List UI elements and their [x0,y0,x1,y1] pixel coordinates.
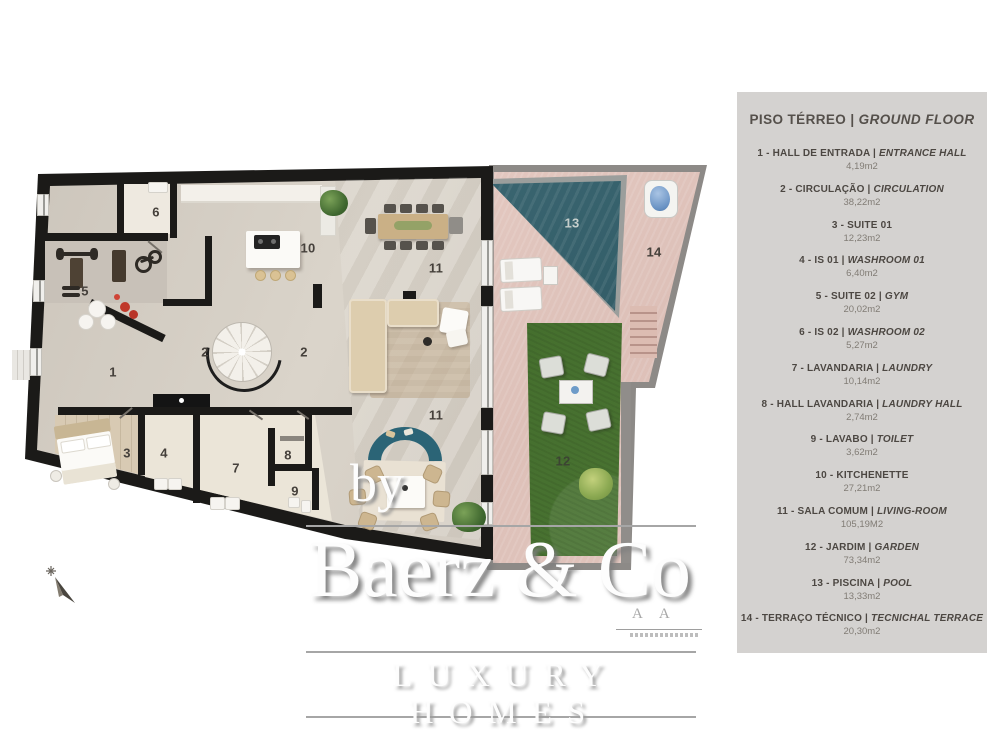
dining-chair [384,241,396,250]
legend-item-6: 6 - IS 02 | WASHROOM 025,27m2 [737,327,987,351]
washbasin [148,182,168,193]
legend-item-12: 12 - JARDIM | GARDEN73,34m2 [737,542,987,566]
interior-wall [138,411,145,475]
garden-chair [585,408,612,432]
exercise-ball [100,314,116,330]
window-glass [33,280,45,302]
room-label-8: 8 [284,448,292,463]
room-label-7: 7 [232,461,240,476]
exercise-ball [114,294,120,300]
room-label-2b: 2 [300,345,308,360]
sofa-left-arm [349,299,387,393]
room-label-9: 9 [291,484,299,499]
room-label-13: 13 [564,216,579,231]
brand-logo-text: Baerz & Co [296,530,704,610]
exercise-ball [120,302,130,312]
bar-stool [285,270,296,281]
interior-wall [170,178,177,238]
lounger-side-table [543,266,558,285]
legend-title-en: GROUND FLOOR [859,112,975,127]
room-label-1: 1 [109,365,117,380]
garden-chair [540,411,566,435]
legend-title: PISO TÉRREO | GROUND FLOOR [745,112,979,127]
dumbbell-rack [62,286,80,290]
side-stool [423,337,432,346]
legend-item-7: 7 - LAVANDARIA | LAUNDRY10,14m2 [737,363,987,387]
garden-bush [579,468,613,500]
nightstand [50,470,62,482]
exercise-ball [78,314,94,330]
window-glass [481,240,493,286]
room-label-2: 2 [201,345,209,360]
room-label-10: 10 [300,241,315,256]
cooktop [254,235,280,249]
terrace-stairs [630,306,657,358]
legend-area-14: 20,30m2 [737,626,987,637]
interior-wall [163,299,212,306]
room-label-11: 11 [429,261,443,276]
brand-logo-sub: A A [632,606,677,623]
legend-item-3: 3 - SUITE 0112,23m2 [737,220,987,244]
sun-lounger [499,286,542,312]
floor-plan-page: 1 2 2 3 4 5 6 7 8 9 10 11 11 12 13 14 by… [0,0,1000,750]
legend-area-2: 38,22m2 [737,197,987,208]
bed [54,418,119,486]
weight-bench [112,250,126,282]
room-label-14: 14 [646,245,661,260]
legend-area-11: 105,19M2 [737,519,987,530]
north-arrow-icon [42,564,82,608]
washer [210,497,225,510]
logo-rule-middle [306,651,696,653]
interior-wall [268,428,275,486]
plant [320,190,348,216]
window-glass [37,194,49,216]
dining-chair [416,241,428,250]
interior-wall [193,411,200,503]
legend-area-13: 13,33m2 [737,591,987,602]
room-label-12: 12 [555,454,570,469]
sun-lounger [499,257,542,283]
dining-chair [432,204,444,213]
nightstand [108,478,120,490]
legend-area-5: 20,02m2 [737,304,987,315]
entrance-door-opening [30,348,42,376]
weight-plate [56,248,64,260]
dining-chair [384,204,396,213]
sink [301,500,311,513]
logo-fine-print [630,633,700,637]
room-label-5: 5 [81,284,89,299]
legend-item-1: 1 - HALL DE ENTRADA | ENTRANCE HALL4,19m… [737,148,987,172]
kitchen-counter [181,185,322,203]
side-table [449,217,463,234]
structural-pillar [313,284,322,308]
dining-chair [365,218,376,234]
entrance-steps [12,350,30,380]
interior-wall [312,468,319,510]
sofa-top-arm [387,299,439,327]
garden-chair [538,355,564,379]
dining-chair [416,204,428,213]
garden-table-decor [571,386,579,394]
legend-area-10: 27,21m2 [737,483,987,494]
legend-item-2: 2 - CIRCULAÇÃO | CIRCULATION38,22m2 [737,184,987,208]
interior-wall [305,411,312,471]
legend-item-10: 10 - KITCHENETTE27,21m2 [737,470,987,494]
interior-wall [117,178,124,238]
dining-chair [432,241,444,250]
table-runner [394,221,432,230]
room-label-6: 6 [152,205,160,220]
toilet [288,497,300,508]
legend-area-9: 3,62m2 [737,447,987,458]
bathroom-fixture [168,478,182,490]
brand-tagline: LUXURY HOMES [296,658,704,732]
weight-plate [90,248,98,260]
pool-equipment-blob [650,186,670,211]
logo-fine-rule [616,629,702,630]
window-glass [481,306,493,408]
legend-item-9: 9 - LAVABO | TOILET3,62m2 [737,434,987,458]
garden-chair [583,353,610,378]
legend-area-3: 12,23m2 [737,233,987,244]
legend-area-7: 10,14m2 [737,376,987,387]
room-label-4: 4 [160,446,168,461]
legend-item-8: 8 - HALL LAVANDARIA | LAUNDRY HALL2,74m2 [737,399,987,423]
room-label-3: 3 [123,446,131,461]
legend-item-13: 13 - PISCINA | POOL13,33m2 [737,578,987,602]
dining-chair [400,241,412,250]
exercise-ball [129,310,138,319]
wicker-chair [432,490,450,507]
watermark-by: by [350,452,404,514]
window-glass [481,430,493,475]
dining-chair [400,204,412,213]
legend-area-8: 2,74m2 [737,412,987,423]
legend-items: 1 - HALL DE ENTRADA | ENTRANCE HALL4,19m… [737,148,987,637]
legend-item-14: 14 - TERRAÇO TÉCNICO | TECNICHAL TERRACE… [737,613,987,637]
bar-stool [270,270,281,281]
bar-stool [255,270,266,281]
tv-logo [179,398,184,403]
interior-wall [268,464,308,471]
laundry-shelf [280,436,304,441]
interior-wall [205,236,212,306]
legend-item-11: 11 - SALA COMUM | LIVING-ROOM105,19M2 [737,506,987,530]
dryer [225,497,240,510]
room-label-11b: 11 [429,408,443,423]
dumbbell-rack [62,293,80,297]
legend-item-5: 5 - SUITE 02 | GYM20,02m2 [737,291,987,315]
legend-area-1: 4,19m2 [737,161,987,172]
legend-area-12: 73,34m2 [737,555,987,566]
legend-area-6: 5,27m2 [737,340,987,351]
legend-panel: PISO TÉRREO | GROUND FLOOR 1 - HALL DE E… [737,92,987,653]
bathroom-fixture [154,478,168,490]
legend-item-4: 4 - IS 01 | WASHROOM 016,40m2 [737,255,987,279]
legend-title-pt: PISO TÉRREO | [750,112,859,127]
legend-area-4: 6,40m2 [737,268,987,279]
